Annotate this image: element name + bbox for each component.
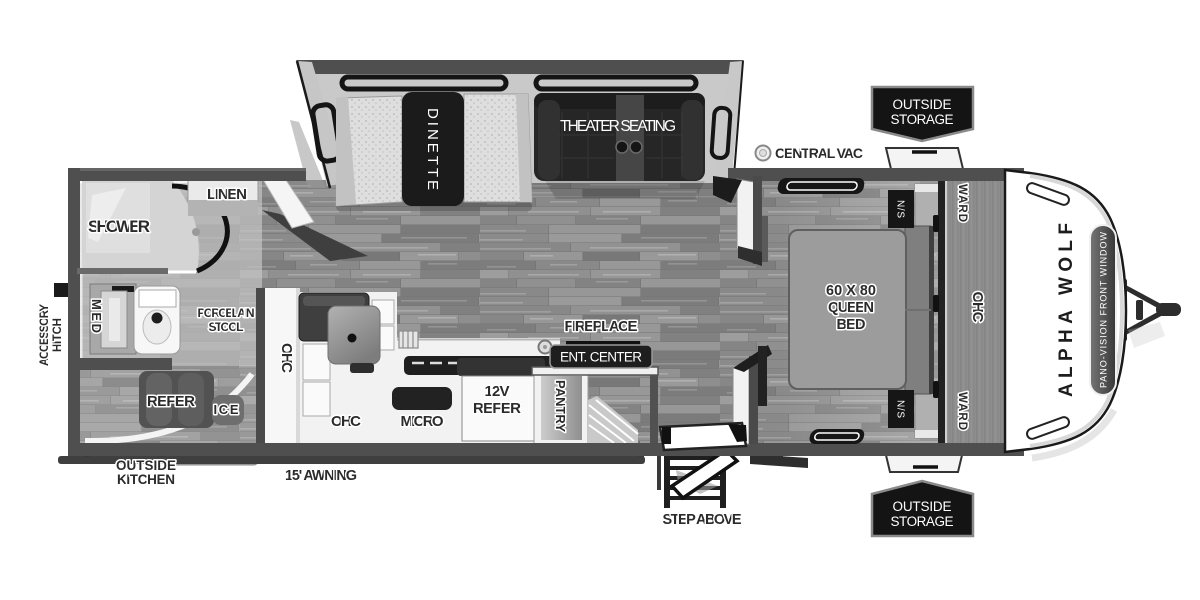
svg-text:LINEN: LINEN (207, 186, 247, 203)
svg-text:ACCESSORY: ACCESSORY (39, 304, 51, 366)
svg-text:15' AWNING: 15' AWNING (285, 468, 357, 484)
svg-text:OHC: OHC (278, 343, 295, 373)
svg-text:THEATER SEATING: THEATER SEATING (560, 118, 676, 135)
svg-text:ENT. CENTER: ENT. CENTER (560, 350, 642, 365)
svg-text:FIREPLACE: FIREPLACE (565, 318, 638, 335)
svg-text:REFER: REFER (147, 393, 195, 410)
svg-text:OHC: OHC (331, 413, 361, 430)
svg-text:WARD: WARD (956, 184, 968, 222)
svg-text:MED: MED (89, 299, 104, 333)
svg-text:OUTSIDE: OUTSIDE (893, 499, 952, 514)
svg-text:OUTSIDE: OUTSIDE (893, 97, 952, 112)
svg-text:CENTRAL VAC: CENTRAL VAC (775, 145, 863, 161)
svg-text:KITCHEN: KITCHEN (117, 472, 175, 487)
svg-text:WARD: WARD (956, 392, 968, 430)
svg-text:12V: 12V (485, 383, 510, 400)
svg-text:OUTSIDE: OUTSIDE (116, 458, 176, 473)
svg-text:BED: BED (837, 317, 866, 333)
svg-text:PANO-VISION FRONT WINDOW: PANO-VISION FRONT WINDOW (1099, 232, 1109, 389)
svg-text:60 X 80: 60 X 80 (826, 283, 876, 299)
svg-text:QUEEN: QUEEN (828, 300, 874, 316)
svg-text:STOOL: STOOL (209, 320, 244, 334)
svg-text:SHOWER: SHOWER (88, 217, 150, 236)
svg-text:STORAGE: STORAGE (891, 112, 954, 127)
svg-text:REFER: REFER (473, 400, 521, 417)
svg-text:PANTRY: PANTRY (553, 380, 568, 432)
svg-text:PORCELAIN: PORCELAIN (198, 306, 255, 320)
svg-text:STORAGE: STORAGE (891, 514, 954, 529)
svg-text:HITCH: HITCH (52, 318, 64, 352)
svg-text:N/S: N/S (895, 400, 906, 418)
svg-text:N/S: N/S (895, 200, 906, 218)
svg-text:OHC: OHC (969, 292, 986, 323)
svg-text:MICRO: MICRO (401, 413, 444, 430)
svg-text:STEP ABOVE: STEP ABOVE (663, 512, 742, 528)
